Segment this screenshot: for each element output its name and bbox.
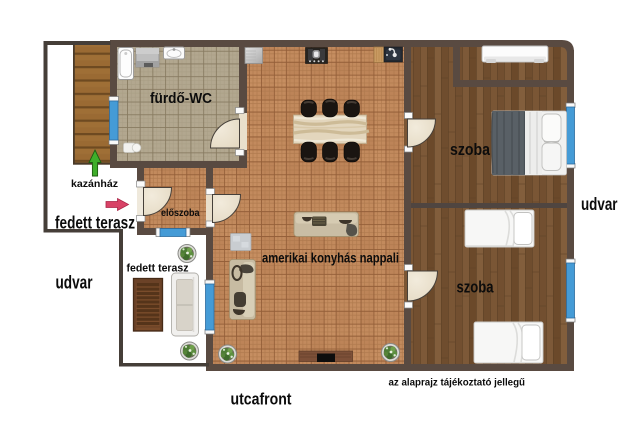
svg-text:az alaprajz tájékoztató jelleg: az alaprajz tájékoztató jellegű (389, 378, 526, 389)
svg-text:kazánház: kazánház (71, 178, 118, 190)
svg-text:szoba: szoba (457, 278, 494, 297)
svg-text:utcafront: utcafront (231, 391, 292, 409)
svg-text:fürdő-WC: fürdő-WC (150, 91, 212, 107)
svg-text:udvar: udvar (56, 273, 93, 293)
svg-text:udvar: udvar (581, 194, 618, 214)
svg-text:fedett terasz: fedett terasz (127, 263, 189, 275)
svg-text:előszoba: előszoba (161, 207, 200, 219)
svg-text:amerikai konyhás nappali: amerikai konyhás nappali (262, 251, 399, 266)
svg-text:szoba: szoba (450, 140, 490, 159)
svg-text:fedett terasz: fedett terasz (55, 213, 135, 233)
